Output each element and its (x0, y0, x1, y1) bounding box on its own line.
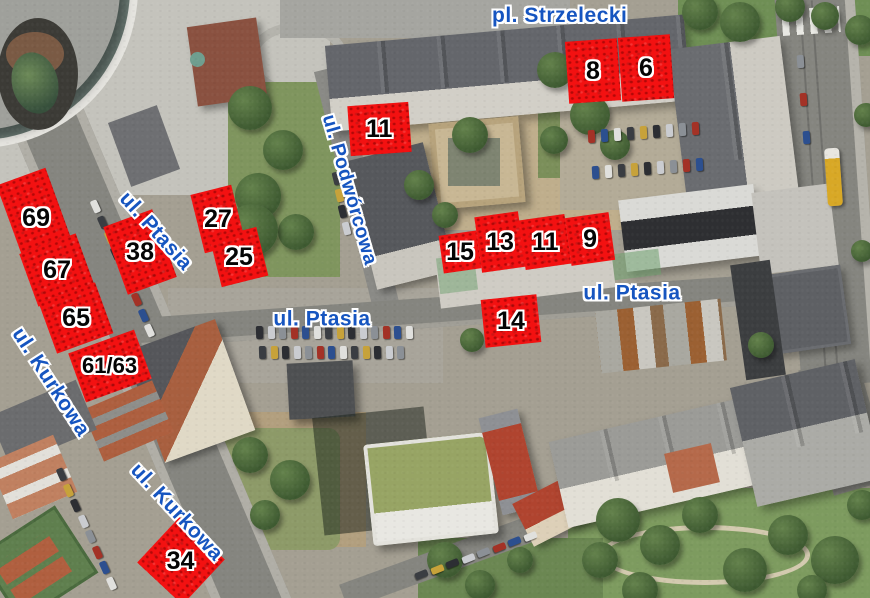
tree (811, 2, 839, 30)
parked-car (692, 122, 700, 135)
parcel-number: 14 (497, 309, 525, 334)
parked-car (106, 576, 118, 591)
tree (540, 126, 568, 154)
parcel-9[interactable]: 9 (565, 212, 615, 266)
parcel-number: 65 (62, 306, 90, 331)
parked-car (618, 164, 626, 177)
parked-car (259, 346, 266, 359)
tree (250, 500, 280, 530)
tree (460, 328, 484, 352)
street-label-ul-ptasia-east: ul. Ptasia (583, 283, 680, 304)
tree (270, 460, 310, 500)
parcel-11-north[interactable]: 11 (347, 102, 411, 156)
tree (228, 86, 272, 130)
parcel-number: 34 (167, 549, 195, 574)
parked-car (270, 346, 277, 359)
tree (768, 515, 808, 555)
parcel-number: 61/63 (82, 355, 137, 377)
parked-car (77, 514, 89, 529)
tree (845, 15, 870, 45)
parcel-number: 9 (583, 227, 597, 252)
parked-car (282, 346, 289, 359)
parked-car (385, 346, 392, 359)
parcel-number: 6 (639, 56, 653, 81)
parked-car (696, 158, 704, 171)
parked-car (670, 160, 678, 173)
tree (720, 2, 760, 42)
parcel-number: 11 (366, 117, 392, 142)
tree (582, 542, 618, 578)
parked-car (683, 159, 691, 172)
parked-car (592, 166, 600, 179)
street-label-pl-strzelecki: pl. Strzelecki (492, 5, 627, 26)
parked-car (605, 165, 613, 178)
parked-car (405, 326, 412, 339)
parcel-14[interactable]: 14 (481, 294, 542, 348)
tree (404, 170, 434, 200)
parked-car (256, 326, 263, 339)
parked-car (803, 131, 811, 144)
tree (723, 548, 767, 592)
tree (748, 332, 774, 358)
tree (797, 575, 827, 598)
parked-car (339, 346, 346, 359)
tree (851, 240, 870, 262)
parked-car (374, 346, 381, 359)
parked-car (351, 346, 358, 359)
parcel-11-east[interactable]: 11 (519, 214, 572, 270)
parked-car (614, 128, 622, 141)
tree (640, 525, 680, 565)
parked-car (657, 161, 665, 174)
parked-car (371, 326, 378, 339)
parked-car (666, 124, 674, 137)
parked-car (640, 126, 648, 139)
aerial-map: 8 6 11 27 25 69 38 67 65 61/63 15 13 11 … (0, 0, 870, 598)
parcel-number: 67 (43, 258, 71, 283)
villa-turret-dome (190, 52, 205, 67)
parcel-number: 13 (486, 230, 514, 255)
parked-car (305, 346, 312, 359)
tree (507, 547, 533, 573)
parcel-6[interactable]: 6 (618, 34, 674, 101)
tree (452, 117, 488, 153)
parked-car (644, 162, 652, 175)
tree (465, 570, 495, 598)
parked-car (601, 129, 609, 142)
tree (847, 490, 870, 520)
parked-car (397, 346, 404, 359)
parked-car (588, 130, 596, 143)
parked-car (382, 326, 389, 339)
tree (278, 214, 314, 250)
sheds-rusty (595, 299, 727, 374)
street-label-ul-ptasia-center: ul. Ptasia (273, 309, 370, 330)
parcel-number: 11 (532, 230, 558, 255)
parked-car (627, 127, 635, 140)
parked-car (99, 560, 111, 575)
building-center-dark (287, 360, 356, 419)
parcel-number: 69 (22, 206, 50, 231)
parcel-number: 15 (446, 240, 474, 265)
parked-car (679, 123, 687, 136)
parcel-number: 27 (204, 207, 232, 232)
parked-car (797, 55, 805, 68)
parked-car (328, 346, 335, 359)
parked-car (92, 545, 104, 560)
tree (682, 497, 718, 533)
parcel-15[interactable]: 15 (439, 231, 482, 274)
parked-car (316, 346, 323, 359)
parked-car (84, 529, 96, 544)
building-green-roof (363, 432, 499, 547)
tree (596, 498, 640, 542)
parcel-number: 8 (586, 59, 600, 84)
parked-car (653, 125, 661, 138)
parked-car (70, 498, 82, 513)
parked-car (800, 93, 808, 106)
tree (263, 130, 303, 170)
parked-car (394, 326, 401, 339)
tree (232, 437, 268, 473)
parcel-number: 38 (126, 240, 154, 265)
parcel-number: 25 (225, 245, 253, 270)
parked-car (293, 346, 300, 359)
tree (432, 202, 458, 228)
parcel-8[interactable]: 8 (565, 38, 621, 103)
parked-car (631, 163, 639, 176)
parked-car (362, 346, 369, 359)
